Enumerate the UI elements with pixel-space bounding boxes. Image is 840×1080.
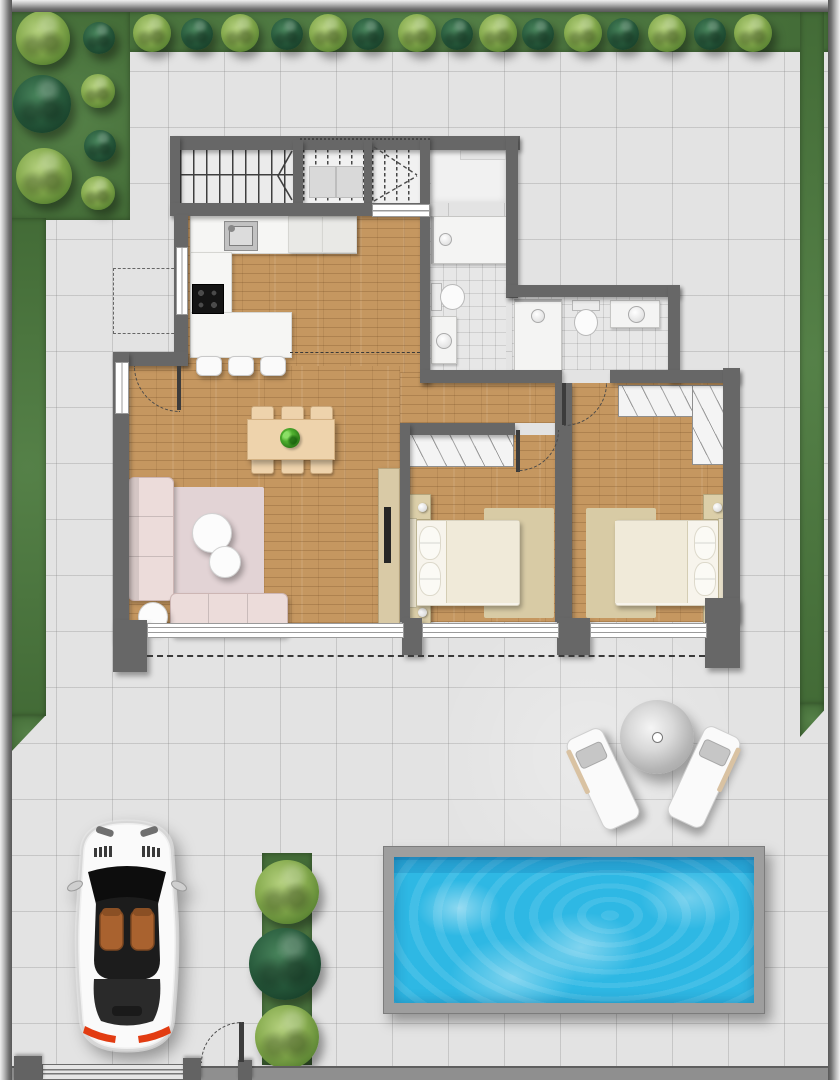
stair-landing [336, 166, 363, 198]
window-kitchen [176, 247, 188, 315]
fence-post [14, 1056, 42, 1080]
gate-post [238, 1060, 252, 1080]
wall-bedroom2-east [723, 368, 740, 622]
stair-landing [309, 166, 336, 198]
lounger-cushion [698, 738, 732, 767]
bathroom-sink [431, 316, 457, 364]
wall-pier-south [402, 618, 422, 655]
exterior-marked-area [113, 268, 179, 334]
wall-pier-southwest [113, 620, 147, 672]
bar-stool [228, 356, 254, 376]
light-green-tree [398, 14, 436, 52]
wall-bathroom2-east [668, 285, 680, 382]
light-green-tree [16, 148, 72, 204]
wall-pier-south [557, 618, 590, 655]
dark-green-tree [441, 18, 473, 50]
bed1-pillow [419, 562, 441, 596]
dark-green-tree [607, 18, 639, 50]
dark-green-tree [181, 18, 213, 50]
coffee-table-small [209, 546, 241, 578]
dark-green-tree [249, 928, 321, 1000]
bar-stool [260, 356, 286, 376]
dark-green-tree [694, 18, 726, 50]
light-green-tree [133, 14, 171, 52]
nightstand [408, 494, 431, 520]
light-green-tree [255, 1005, 319, 1069]
bed1-duvet [446, 521, 519, 603]
window-stairs [372, 204, 430, 217]
dark-green-tree [271, 18, 303, 50]
sliding-glass-door-bedroom2 [590, 623, 707, 638]
patio-umbrella-top [620, 700, 694, 774]
light-green-tree [564, 14, 602, 52]
light-green-tree [221, 14, 259, 52]
kitchen-cabinet [322, 216, 357, 253]
bedroom2-wardrobe-side [692, 385, 724, 465]
swimming-pool [383, 846, 765, 1014]
light-green-tree [81, 176, 115, 210]
toilet-bowl [574, 309, 598, 336]
light-green-tree [16, 11, 70, 65]
shower-tray [431, 216, 509, 264]
entry-shelf [460, 150, 506, 160]
wall-bathroom2-north [506, 285, 680, 297]
wall-hall-north-a [420, 370, 562, 383]
wall-stair-divider [364, 140, 372, 203]
dark-green-tree [83, 22, 115, 54]
driveway-gate [42, 1064, 185, 1080]
wall-bathroom1-west [420, 136, 430, 383]
light-green-tree [309, 14, 347, 52]
kitchen-sink [224, 221, 258, 251]
wall-bedroom1-north [408, 423, 515, 435]
bed2-pillow [694, 526, 716, 560]
dark-green-tree [13, 75, 71, 133]
shower-tray [514, 299, 562, 372]
shower-drain [439, 233, 452, 246]
ceiling-change-line [290, 352, 420, 353]
sliding-glass-door-living [147, 623, 404, 638]
bathroom-sink [610, 300, 660, 328]
roof-overhang-line [147, 655, 705, 657]
light-green-tree [734, 14, 772, 52]
wall-pier-southeast [705, 598, 740, 668]
sliding-glass-door-bedroom1 [422, 623, 559, 638]
stair-void-line [300, 138, 430, 140]
dark-green-tree [352, 18, 384, 50]
wall-hall-north-b [610, 370, 740, 383]
bed2-pillow [694, 562, 716, 596]
toilet-bowl [440, 284, 465, 310]
cooktop [192, 284, 224, 314]
rear-deck-detail [112, 1006, 142, 1016]
boundary-wall-top [0, 0, 840, 12]
tv-screen [384, 507, 391, 563]
floor-plan [0, 0, 840, 1080]
wall-entry-east [506, 136, 518, 298]
kitchen-island [190, 312, 292, 358]
light-green-tree [648, 14, 686, 52]
window-living [115, 362, 129, 414]
staircase-upper-flight [372, 142, 420, 203]
boundary-wall-left [0, 0, 12, 1080]
car-top-view [52, 810, 202, 1060]
boundary-wall-right [828, 0, 840, 1080]
bed1-pillow [419, 526, 441, 560]
sofa-chaise [128, 477, 174, 601]
shower-drain [531, 309, 545, 323]
sink-basin [628, 306, 645, 323]
light-green-tree [479, 14, 517, 52]
light-green-tree [255, 860, 319, 924]
wall-stair-divider [293, 140, 303, 203]
pool-water [394, 857, 754, 1003]
gate-post [183, 1058, 201, 1080]
bar-stool [196, 356, 222, 376]
dark-green-tree [522, 18, 554, 50]
sink-basin [436, 333, 452, 349]
lounger-cushion [574, 740, 608, 769]
light-green-tree [81, 74, 115, 108]
bed2-duvet [615, 521, 688, 603]
staircase-lower-flight [180, 148, 293, 203]
wall-bedroom1-west [400, 423, 410, 622]
dark-green-tree [84, 130, 116, 162]
kitchen-cabinet [288, 216, 323, 253]
table-plant [280, 428, 300, 448]
rear-deck [94, 979, 161, 1026]
